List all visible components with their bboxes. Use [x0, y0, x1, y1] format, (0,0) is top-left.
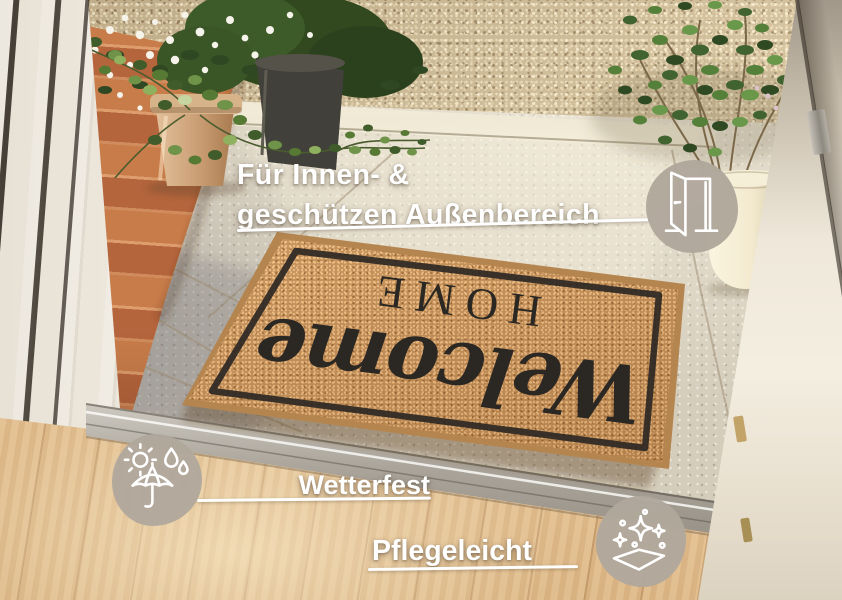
- door-knob: [674, 200, 678, 204]
- sparkle-ring: [643, 510, 647, 514]
- raindrop-small: [180, 462, 188, 474]
- sun-umbrella-raindrops-icon: [118, 440, 195, 519]
- product-photo-scene: Welcome HOME Für Innen- & geschützen Auß…: [0, 0, 842, 600]
- sparkle-ring: [633, 543, 637, 547]
- sparkle-left: [614, 534, 626, 547]
- raindrop-large: [166, 449, 178, 467]
- headline-line-1: Für Innen- &: [237, 155, 600, 195]
- doormat-text: Welcome HOME: [251, 251, 654, 441]
- sparkles-clean-icon: [602, 502, 679, 580]
- umbrella-handle: [146, 486, 153, 507]
- door-leaf: [672, 172, 686, 234]
- sparkle-right: [653, 525, 664, 537]
- surface-diamond: [614, 550, 664, 570]
- clean-icon-badge: [596, 496, 686, 587]
- sparkle-ring: [621, 521, 625, 525]
- weather-icon-badge: [112, 434, 202, 526]
- open-door-icon-badge: [646, 160, 738, 253]
- door-frame: [686, 178, 711, 230]
- feature-easycare-label: Pflegeleicht: [372, 535, 532, 568]
- open-door-icon: [652, 167, 731, 247]
- sparkle-ring: [660, 544, 664, 548]
- sparkle-large: [630, 517, 652, 541]
- sun: [134, 453, 148, 467]
